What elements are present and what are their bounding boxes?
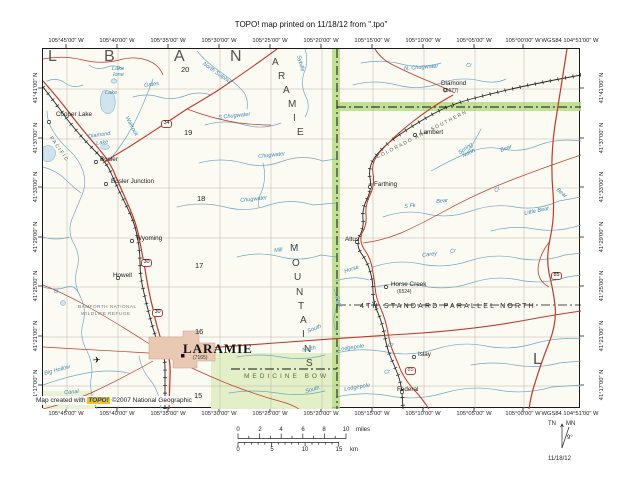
map-graphics [43, 49, 581, 409]
scale-bar: 0246810 miles 051015 km [228, 429, 403, 457]
scale-tick-label: 0 [236, 447, 239, 453]
scale-tick-label: 15 [336, 447, 343, 453]
scale-km-unit: km [350, 447, 358, 453]
town-markers [47, 88, 446, 393]
magnetic-north-label: MN [566, 421, 575, 427]
scale-tick-label: 5 [270, 447, 273, 453]
scale-tick-label: 4 [279, 427, 282, 433]
city-area [149, 331, 215, 368]
declination-diagram: TN MN 9° 11/18/12 [536, 420, 618, 468]
scale-tick-label: 10 [343, 427, 350, 433]
topo-logo: TOPO! [87, 397, 109, 404]
scale-miles-unit: miles [356, 427, 370, 433]
map-credit: Map created with TOPO! ©2007 National Ge… [33, 396, 195, 405]
scale-km-numbers: 051015 [228, 447, 403, 455]
topo-print-page: { "header": { "title": "TOPO! map printe… [0, 0, 622, 480]
credit-prefix: Map created with [36, 397, 87, 404]
credit-suffix: ©2007 National Geographic [110, 397, 192, 404]
forest-area [211, 353, 332, 409]
scale-tick-label: 6 [301, 427, 304, 433]
declination-angle: 9° [567, 435, 573, 441]
scale-tick-label: 2 [258, 427, 261, 433]
true-north-label: TN [548, 421, 556, 427]
declination-date: 11/18/12 [548, 456, 571, 462]
scale-miles-numbers: 0246810 [228, 427, 403, 435]
scale-tick-label: 0 [236, 427, 239, 433]
scale-tick-label: 8 [322, 427, 325, 433]
scale-tick-label: 10 [302, 447, 309, 453]
map-canvas[interactable] [42, 48, 580, 408]
